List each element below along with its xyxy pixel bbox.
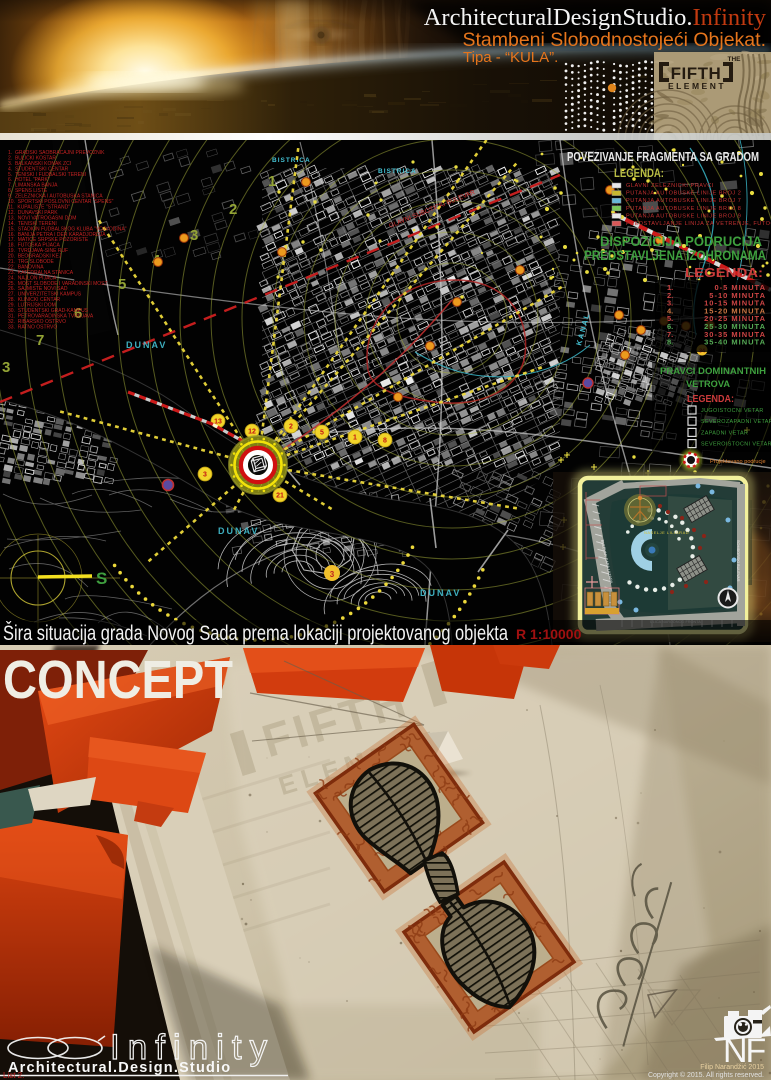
svg-text:3: 3 [190, 227, 198, 244]
svg-text:3: 3 [203, 472, 207, 479]
svg-text:33. RATNO OSTRVO: 33. RATNO OSTRVO [8, 324, 57, 330]
svg-text:Šira situacija grada Novog Sad: Šira situacija grada Novog Sada prema lo… [3, 622, 508, 645]
svg-text:S: S [96, 569, 107, 588]
svg-text:SEVEROISTOCNI VETAR: SEVEROISTOCNI VETAR [701, 442, 771, 448]
svg-text:Architectural.Design.Studio: Architectural.Design.Studio [8, 1060, 231, 1076]
svg-text:BISTRICA: BISTRICA [272, 157, 311, 164]
svg-text:JUGOISTOCNI VETAR: JUGOISTOCNI VETAR [701, 408, 764, 414]
svg-text:Projektovano podrucje: Projektovano podrucje [710, 459, 766, 465]
svg-text:LEGENDA:: LEGENDA: [614, 166, 664, 180]
svg-text:35-40 MINUTA: 35-40 MINUTA [704, 338, 766, 347]
svg-text:Copyright © 2015. All rights r: Copyright © 2015. All rights reserved. [648, 1071, 764, 1079]
svg-text:PREDSTAVLJENA IZOHRONAMA: PREDSTAVLJENA IZOHRONAMA [584, 248, 766, 263]
svg-text:LEGENDA:: LEGENDA: [687, 394, 734, 405]
svg-text:List 2.: List 2. [3, 1071, 24, 1080]
svg-text:DISPOZICIJA PODRUCIJA: DISPOZICIJA PODRUCIJA [600, 234, 762, 249]
svg-text:SEVEROZAPADNI VETAR: SEVEROZAPADNI VETAR [701, 419, 771, 425]
svg-text:DUNAV: DUNAV [218, 526, 259, 536]
svg-text:LEGENDA:: LEGENDA: [685, 266, 763, 280]
svg-text:CONCEPT: CONCEPT [3, 650, 233, 710]
svg-text:5: 5 [118, 276, 126, 293]
svg-text:ArchitecturalDesignStudio.Infi: ArchitecturalDesignStudio.Infinity [424, 4, 767, 31]
svg-text:VETROVA: VETROVA [686, 379, 731, 389]
svg-text:5: 5 [320, 430, 324, 437]
svg-text:7: 7 [36, 332, 44, 349]
svg-text:Stambeni Slobodnostojeći Objek: Stambeni Slobodnostojeći Objekat. [462, 29, 766, 51]
svg-text:THE: THE [728, 56, 742, 63]
svg-text:2: 2 [289, 424, 293, 431]
svg-text:12: 12 [248, 429, 256, 436]
svg-text:R 1:10000: R 1:10000 [516, 626, 582, 642]
svg-text:3: 3 [2, 359, 10, 376]
svg-text:8: 8 [383, 438, 387, 445]
svg-text:PRAVCI DOMINANTNIH: PRAVCI DOMINANTNIH [660, 366, 766, 376]
svg-text:PUTANJA AUTOBUSKE LINIJE BROJ: PUTANJA AUTOBUSKE LINIJE BROJ 9 [626, 213, 741, 219]
svg-text:PUTANJA AUTOBUSKE LINIJE BROJ: PUTANJA AUTOBUSKE LINIJE BROJ 8 [626, 206, 741, 212]
svg-text:Tipa - “KULA”.: Tipa - “KULA”. [463, 49, 558, 66]
svg-text:DUNAV: DUNAV [126, 340, 167, 350]
svg-text:2: 2 [229, 201, 237, 218]
svg-text:ELEMENT: ELEMENT [668, 81, 726, 91]
svg-text:BISTRICA: BISTRICA [378, 168, 417, 175]
svg-text:8.: 8. [667, 338, 673, 347]
svg-text:PUTANJA AUTOBUSKE LINIJE BROJ: PUTANJA AUTOBUSKE LINIJE BROJ 7 [626, 198, 741, 204]
svg-text:GLAVNI ZELEZNICKI PRAVCI: GLAVNI ZELEZNICKI PRAVCI [626, 183, 714, 189]
svg-text:1: 1 [268, 173, 276, 190]
svg-text:SOMBORSKI BULEVAR: SOMBORSKI BULEVAR [736, 540, 740, 582]
svg-text:PREDSTAVLJANJE LINIJA ZA VETRE: PREDSTAVLJANJE LINIJA ZA VETRENJE, FUTOG… [626, 221, 771, 227]
svg-text:1: 1 [353, 435, 357, 442]
svg-text:NASELJE LILIGRAD: NASELJE LILIGRAD [644, 530, 689, 535]
svg-text:ZAPADNI VETAR: ZAPADNI VETAR [701, 430, 748, 436]
svg-text:3: 3 [330, 570, 335, 579]
svg-text:Filip Narandžić 2015: Filip Narandžić 2015 [700, 1064, 764, 1071]
svg-text:21: 21 [276, 493, 284, 500]
svg-text:DUNAV: DUNAV [420, 588, 461, 598]
svg-text:POVEZIVANJE FRAGMENTA SA GRADO: POVEZIVANJE FRAGMENTA SA GRADOM [567, 150, 759, 164]
svg-text:PUTANJA AUTOBUSKE LINIJE BROJ: PUTANJA AUTOBUSKE LINIJE BROJ 2 [626, 191, 741, 197]
